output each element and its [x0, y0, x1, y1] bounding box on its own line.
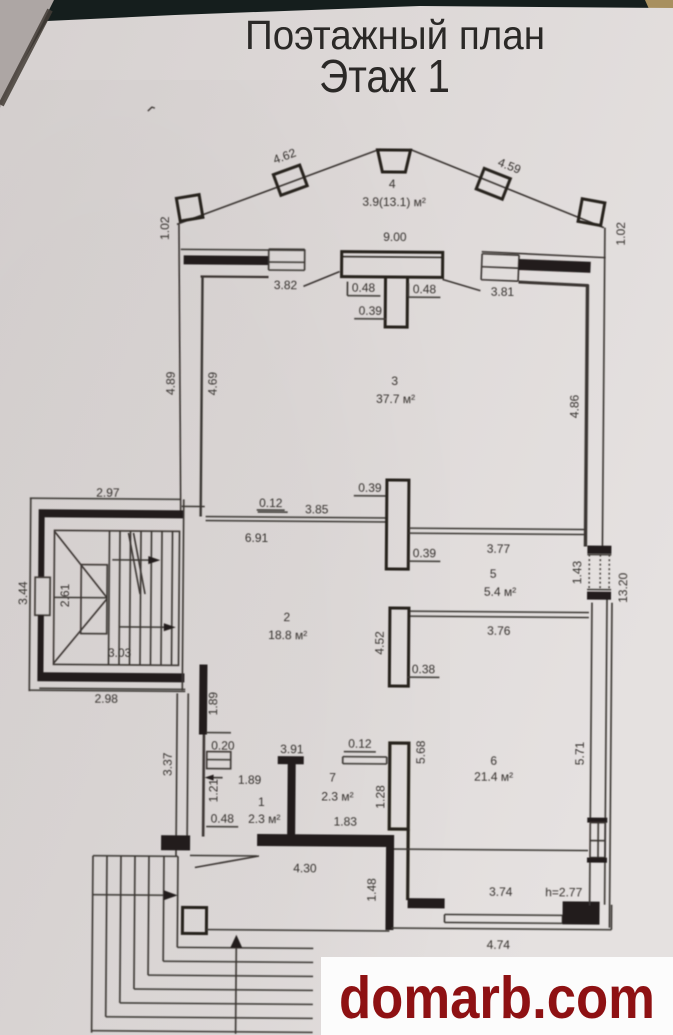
svg-text:9.00: 9.00: [383, 230, 407, 244]
svg-text:13.20: 13.20: [616, 572, 630, 602]
svg-text:3: 3: [391, 374, 398, 388]
svg-text:1.89: 1.89: [238, 773, 262, 787]
svg-text:2.3 м²: 2.3 м²: [321, 789, 353, 803]
svg-text:1.02: 1.02: [158, 216, 172, 240]
svg-text:0.39: 0.39: [413, 546, 437, 560]
svg-text:3.9(13.1) м²: 3.9(13.1) м²: [362, 195, 426, 209]
svg-text:2.97: 2.97: [96, 486, 120, 500]
svg-text:domarb.com: domarb.com: [339, 965, 655, 1031]
svg-text:0.39: 0.39: [359, 304, 383, 318]
svg-text:3.82: 3.82: [274, 278, 298, 292]
svg-text:0.12: 0.12: [348, 737, 372, 751]
svg-text:6: 6: [490, 754, 497, 768]
svg-text:4.52: 4.52: [373, 631, 387, 655]
svg-text:0.20: 0.20: [211, 739, 235, 753]
svg-text:4: 4: [389, 177, 396, 191]
svg-text:3.03: 3.03: [108, 646, 132, 660]
svg-text:0.48: 0.48: [352, 281, 376, 295]
svg-text:1.89: 1.89: [206, 692, 220, 716]
svg-text:3.77: 3.77: [487, 542, 511, 556]
svg-text:5.68: 5.68: [414, 740, 428, 764]
svg-text:6.91: 6.91: [245, 531, 269, 545]
svg-text:3.91: 3.91: [280, 742, 304, 756]
svg-text:1.21: 1.21: [206, 779, 220, 803]
svg-text:18.8 м²: 18.8 м²: [268, 628, 307, 642]
svg-text:37.7 м²: 37.7 м²: [376, 392, 415, 406]
svg-text:5.71: 5.71: [573, 741, 587, 765]
svg-text:1.83: 1.83: [334, 815, 358, 829]
svg-text:1.02: 1.02: [614, 222, 628, 246]
svg-text:4.30: 4.30: [293, 861, 317, 875]
svg-text:0.48: 0.48: [211, 812, 235, 826]
svg-text:0.12: 0.12: [259, 496, 283, 510]
svg-text:Этаж 1: Этаж 1: [319, 50, 450, 102]
svg-text:0.48: 0.48: [413, 282, 437, 296]
svg-text:2: 2: [283, 610, 290, 624]
svg-text:21.4 м²: 21.4 м²: [474, 770, 513, 784]
svg-text:4.86: 4.86: [567, 394, 581, 418]
svg-text:3.44: 3.44: [16, 581, 30, 605]
svg-text:2.98: 2.98: [94, 692, 118, 706]
svg-text:2.3 м²: 2.3 м²: [248, 812, 280, 826]
svg-text:3.76: 3.76: [487, 624, 511, 638]
svg-text:2.61: 2.61: [58, 583, 72, 607]
svg-text:1.48: 1.48: [365, 878, 379, 902]
svg-text:3.85: 3.85: [305, 502, 329, 516]
svg-text:1: 1: [258, 795, 265, 809]
svg-text:4.74: 4.74: [487, 938, 511, 952]
svg-text:4.69: 4.69: [206, 372, 220, 396]
svg-text:3.37: 3.37: [161, 752, 175, 776]
svg-text:h=2.77: h=2.77: [545, 885, 582, 899]
svg-text:5.4 м²: 5.4 м²: [484, 585, 516, 599]
svg-text:3.74: 3.74: [489, 885, 513, 899]
svg-text:0.38: 0.38: [412, 662, 436, 676]
svg-text:0.39: 0.39: [358, 481, 382, 495]
svg-text:5: 5: [490, 567, 497, 581]
svg-text:1.28: 1.28: [373, 785, 387, 809]
svg-text:4.89: 4.89: [164, 371, 178, 395]
svg-text:1.43: 1.43: [570, 560, 584, 584]
svg-text:7: 7: [329, 771, 336, 785]
svg-text:3.81: 3.81: [491, 285, 515, 299]
